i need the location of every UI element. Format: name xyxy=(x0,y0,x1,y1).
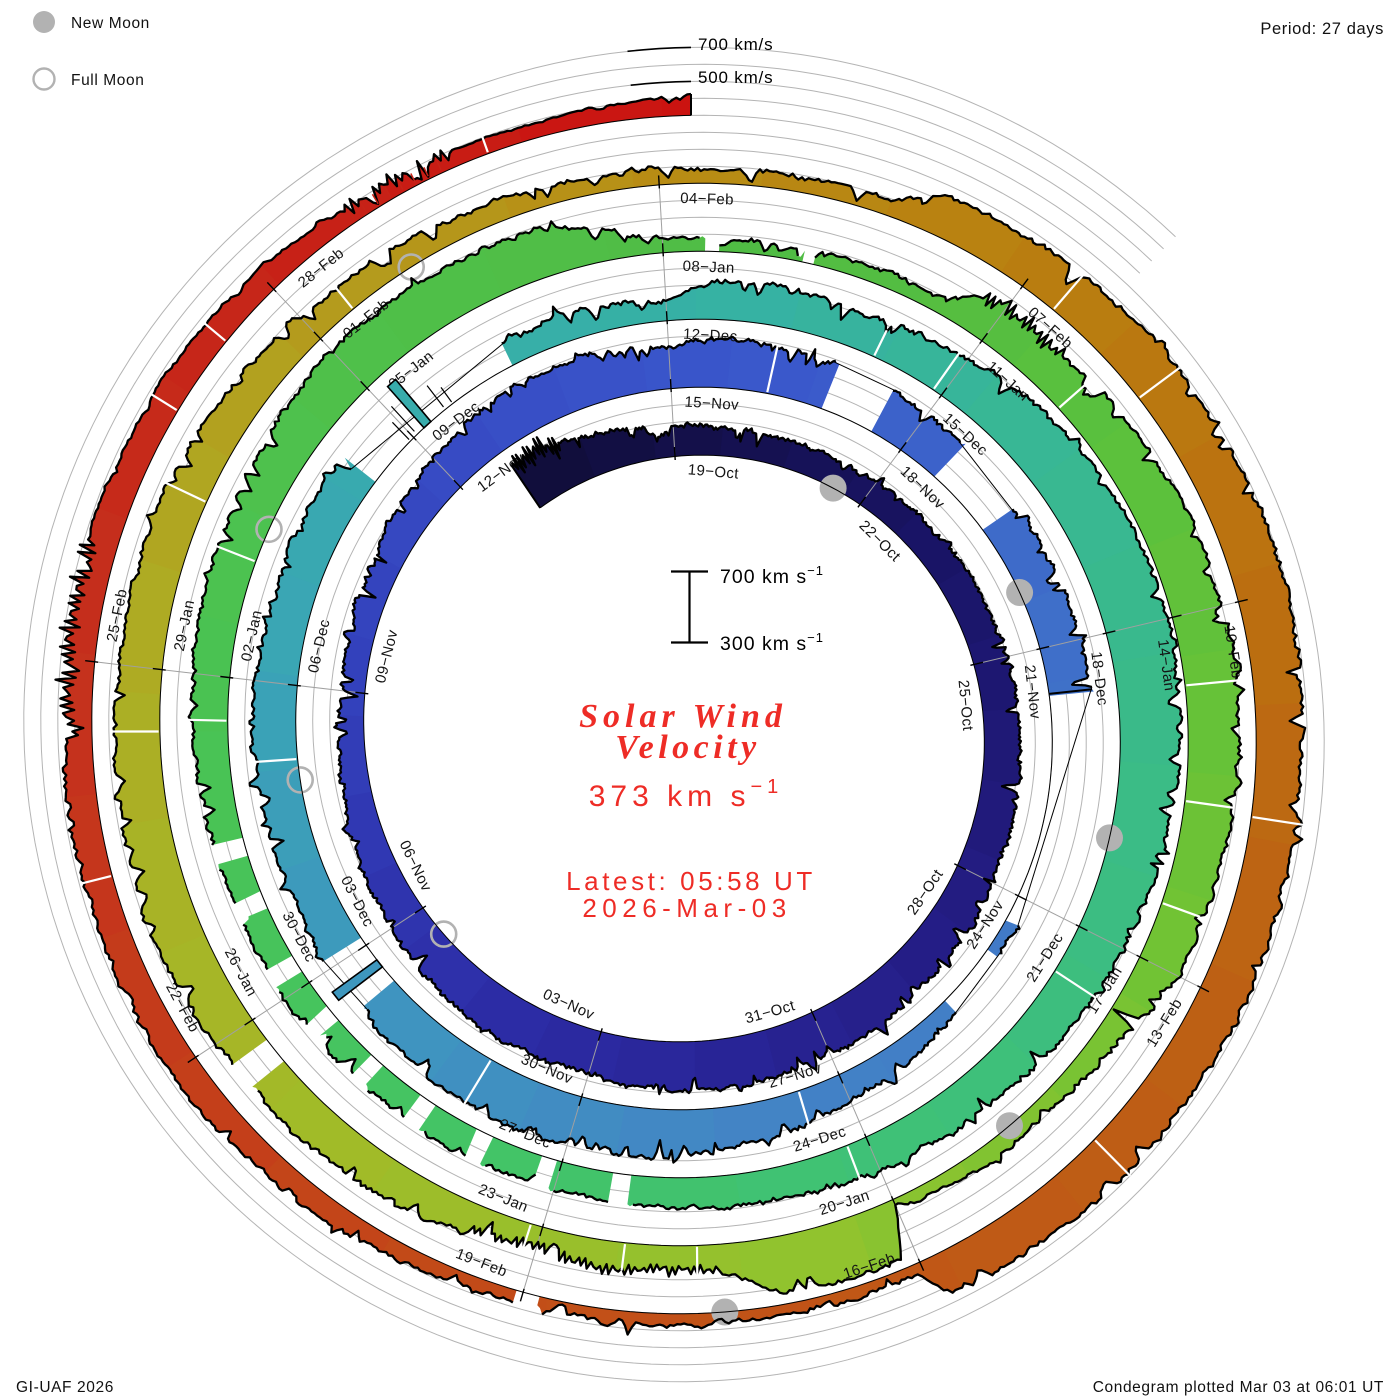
svg-text:15−Nov: 15−Nov xyxy=(684,394,740,414)
svg-text:12−Dec: 12−Dec xyxy=(683,326,738,346)
svg-text:Velocity: Velocity xyxy=(615,729,761,766)
svg-text:Latest: 05:58 UT: Latest: 05:58 UT xyxy=(566,866,816,896)
svg-text:2026-Mar-03: 2026-Mar-03 xyxy=(582,893,791,923)
svg-text:Period: 27 days: Period: 27 days xyxy=(1260,20,1384,38)
svg-text:Full Moon: Full Moon xyxy=(71,72,144,89)
svg-text:GI-UAF 2026: GI-UAF 2026 xyxy=(16,1379,114,1396)
svg-text:700 km/s: 700 km/s xyxy=(698,35,773,54)
svg-text:Condegram plotted Mar 03 at 06: Condegram plotted Mar 03 at 06:01 UT xyxy=(1093,1379,1384,1396)
svg-text:04−Feb: 04−Feb xyxy=(680,190,734,209)
svg-text:New Moon: New Moon xyxy=(71,15,150,32)
svg-text:08−Jan: 08−Jan xyxy=(682,258,735,277)
svg-text:500 km/s: 500 km/s xyxy=(698,68,773,87)
